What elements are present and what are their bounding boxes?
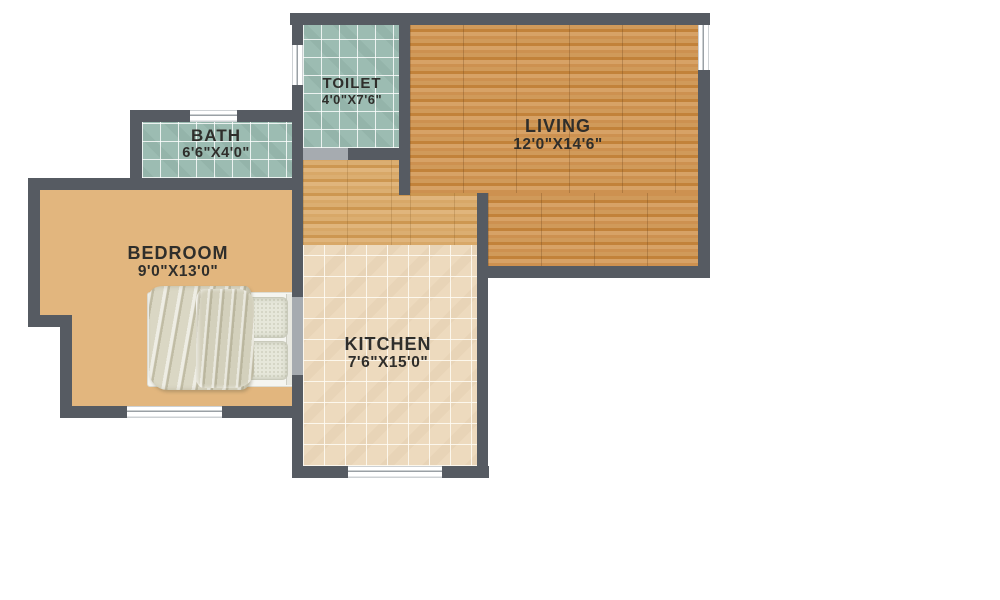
hall-floor <box>303 160 410 245</box>
wall-bedroom-bottom <box>60 406 127 418</box>
bedroom-window <box>127 406 222 418</box>
living-dimensions: 12'0"X14'6" <box>513 136 602 153</box>
bedroom-label: BEDROOM 9'0"X13'0" <box>128 243 229 280</box>
wall-toilet-right <box>399 25 410 195</box>
kitchen-name: KITCHEN <box>345 334 432 354</box>
bath-label: BATH 6'6"X4'0" <box>182 126 250 161</box>
living-window <box>698 25 709 70</box>
toilet-door-opening <box>302 148 348 160</box>
toilet-dimensions: 4'0"X7'6" <box>322 93 382 107</box>
toilet-window <box>292 45 303 85</box>
wall-kitchen-bottom <box>292 466 348 478</box>
kitchen-label: KITCHEN 7'6"X15'0" <box>345 334 432 371</box>
wall-toilet-bottom <box>348 148 410 160</box>
bed-duvet-fold <box>196 289 254 388</box>
wall-bath-left <box>130 110 142 180</box>
living-floor-upper <box>410 25 698 193</box>
bedroom-name: BEDROOM <box>128 243 229 263</box>
wall-living-bottom <box>477 266 710 278</box>
floorplan-canvas: TOILET 4'0"X7'6" BATH 6'6"X4'0" LIVING 1… <box>0 0 1000 600</box>
wall-bedroom-bottom <box>222 406 303 418</box>
wall-toilet-left <box>292 25 303 45</box>
wall-living-right <box>698 70 710 278</box>
toilet-label: TOILET 4'0"X7'6" <box>322 76 382 107</box>
living-name: LIVING <box>513 116 602 136</box>
wall-kitchen-bottom <box>442 466 489 478</box>
wall-bedroom-left <box>28 178 40 327</box>
bedroom-door-opening <box>292 297 303 375</box>
living-floor-lower <box>488 193 698 266</box>
living-label: LIVING 12'0"X14'6" <box>513 116 602 153</box>
hall-floor-east <box>410 193 477 245</box>
bath-window <box>190 110 237 122</box>
bedroom-dimensions: 9'0"X13'0" <box>128 263 229 280</box>
wall-kitchen-right <box>477 193 488 478</box>
wall-kitchen-left <box>292 375 303 478</box>
bath-name: BATH <box>182 126 250 145</box>
wall-top <box>290 13 710 25</box>
wall-bedroom-left-lower <box>60 315 72 418</box>
kitchen-window <box>348 466 442 478</box>
toilet-name: TOILET <box>322 76 382 93</box>
bath-dimensions: 6'6"X4'0" <box>182 145 250 161</box>
wall-bath-top <box>237 110 303 122</box>
kitchen-dimensions: 7'6"X15'0" <box>345 354 432 371</box>
wall-bedroom-top <box>28 178 303 190</box>
